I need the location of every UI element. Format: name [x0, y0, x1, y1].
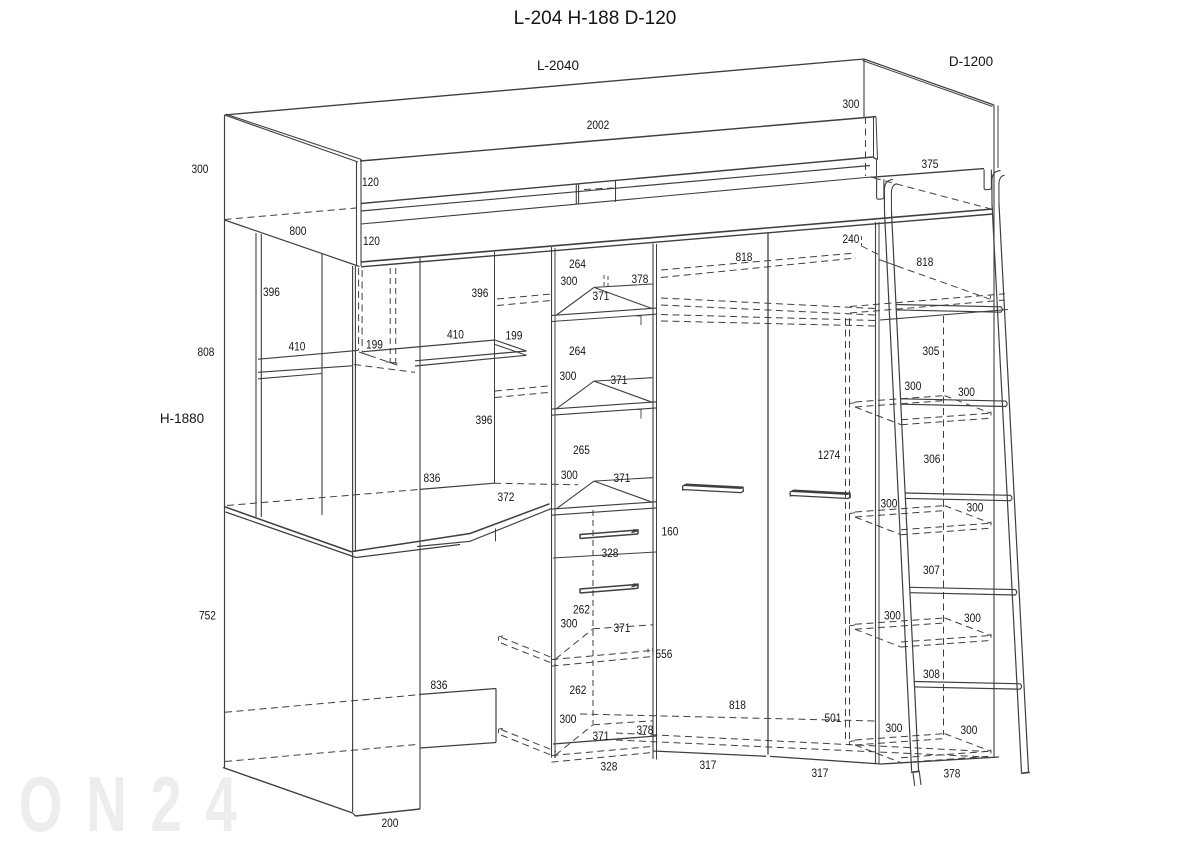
svg-text:410: 410	[289, 340, 306, 354]
svg-text:410: 410	[447, 328, 464, 342]
svg-text:ON24: ON24	[19, 761, 261, 848]
svg-text:200: 200	[382, 816, 399, 830]
svg-text:396: 396	[263, 285, 280, 299]
svg-text:371: 371	[611, 373, 628, 387]
svg-text:396: 396	[476, 413, 493, 427]
svg-text:836: 836	[431, 678, 448, 692]
svg-text:L-204 H-188 D-120: L-204 H-188 D-120	[514, 8, 677, 29]
svg-text:300: 300	[964, 611, 981, 625]
svg-text:300: 300	[967, 501, 984, 515]
svg-text:262: 262	[573, 603, 590, 617]
svg-text:300: 300	[560, 712, 577, 726]
svg-text:328: 328	[601, 760, 618, 774]
svg-text:378: 378	[944, 767, 961, 781]
svg-text:2002: 2002	[587, 118, 610, 132]
svg-text:300: 300	[886, 721, 903, 735]
svg-text:300: 300	[561, 274, 578, 288]
svg-text:305: 305	[923, 344, 940, 358]
svg-text:378: 378	[632, 272, 649, 286]
svg-text:264: 264	[569, 344, 586, 358]
svg-text:L-2040: L-2040	[537, 58, 579, 73]
svg-text:120: 120	[362, 175, 379, 189]
svg-text:371: 371	[593, 289, 610, 303]
svg-text:307: 307	[923, 563, 940, 577]
svg-text:372: 372	[498, 490, 515, 504]
svg-text:371: 371	[614, 621, 631, 635]
svg-text:300: 300	[560, 369, 577, 383]
svg-text:300: 300	[961, 723, 978, 737]
svg-text:199: 199	[506, 329, 523, 343]
svg-text:160: 160	[662, 525, 679, 539]
svg-text:501: 501	[825, 711, 842, 725]
svg-text:300: 300	[561, 617, 578, 631]
svg-text:317: 317	[700, 758, 717, 772]
svg-text:328: 328	[602, 546, 619, 560]
svg-text:300: 300	[561, 468, 578, 482]
svg-text:300: 300	[884, 609, 901, 623]
svg-text:317: 317	[812, 766, 829, 780]
svg-text:371: 371	[593, 729, 610, 743]
svg-text:818: 818	[917, 255, 934, 269]
svg-text:300: 300	[881, 497, 898, 511]
svg-text:371: 371	[614, 471, 631, 485]
svg-text:836: 836	[424, 471, 441, 485]
svg-text:375: 375	[922, 157, 939, 171]
svg-text:808: 808	[198, 345, 215, 359]
svg-text:800: 800	[290, 224, 307, 238]
svg-text:262: 262	[570, 683, 587, 697]
svg-text:308: 308	[923, 667, 940, 681]
svg-text:199: 199	[366, 338, 383, 352]
svg-text:300: 300	[905, 379, 922, 393]
svg-text:264: 264	[569, 257, 586, 271]
svg-text:265: 265	[573, 443, 590, 457]
svg-text:396: 396	[472, 286, 489, 300]
svg-text:120: 120	[363, 234, 380, 248]
svg-text:306: 306	[924, 452, 941, 466]
svg-text:556: 556	[656, 647, 673, 661]
svg-text:752: 752	[199, 609, 216, 623]
svg-text:D-1200: D-1200	[949, 54, 993, 69]
svg-text:1274: 1274	[818, 448, 841, 462]
svg-text:300: 300	[192, 162, 209, 176]
svg-text:300: 300	[958, 385, 975, 399]
svg-text:240: 240	[843, 232, 860, 246]
svg-text:818: 818	[729, 698, 746, 712]
svg-text:300: 300	[843, 97, 860, 111]
svg-text:H-1880: H-1880	[160, 411, 204, 426]
svg-text:818: 818	[736, 250, 753, 264]
